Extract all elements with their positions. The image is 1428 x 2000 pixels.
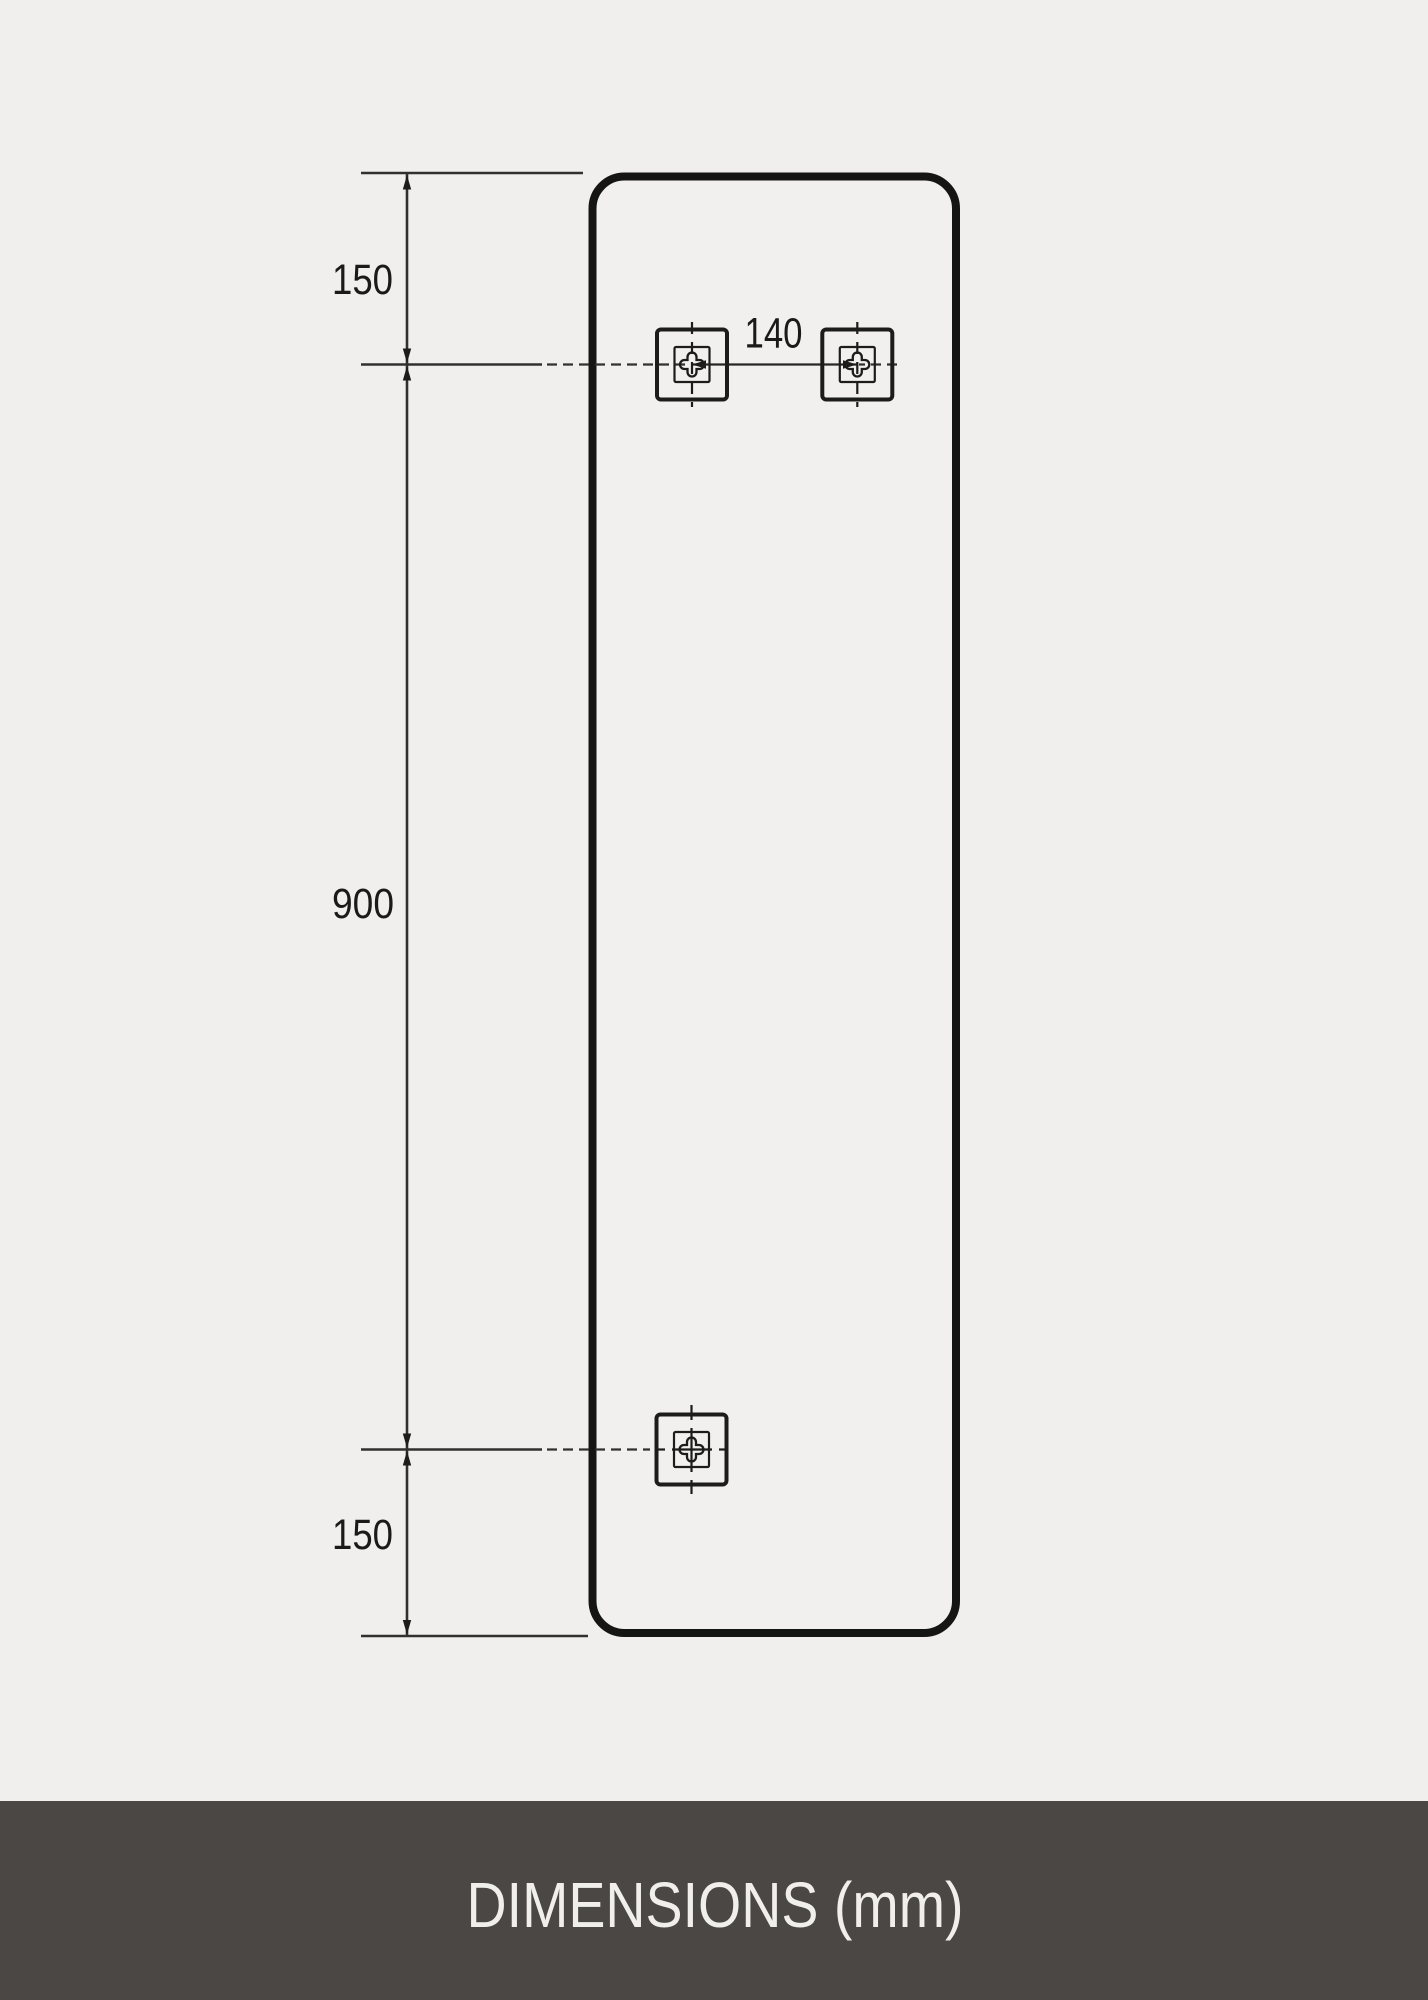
svg-text:150: 150 [332, 256, 393, 304]
svg-text:900: 900 [332, 880, 394, 928]
svg-text:DIMENSIONS (mm): DIMENSIONS (mm) [467, 1869, 964, 1941]
svg-text:150: 150 [332, 1511, 393, 1559]
svg-text:140: 140 [745, 310, 803, 358]
